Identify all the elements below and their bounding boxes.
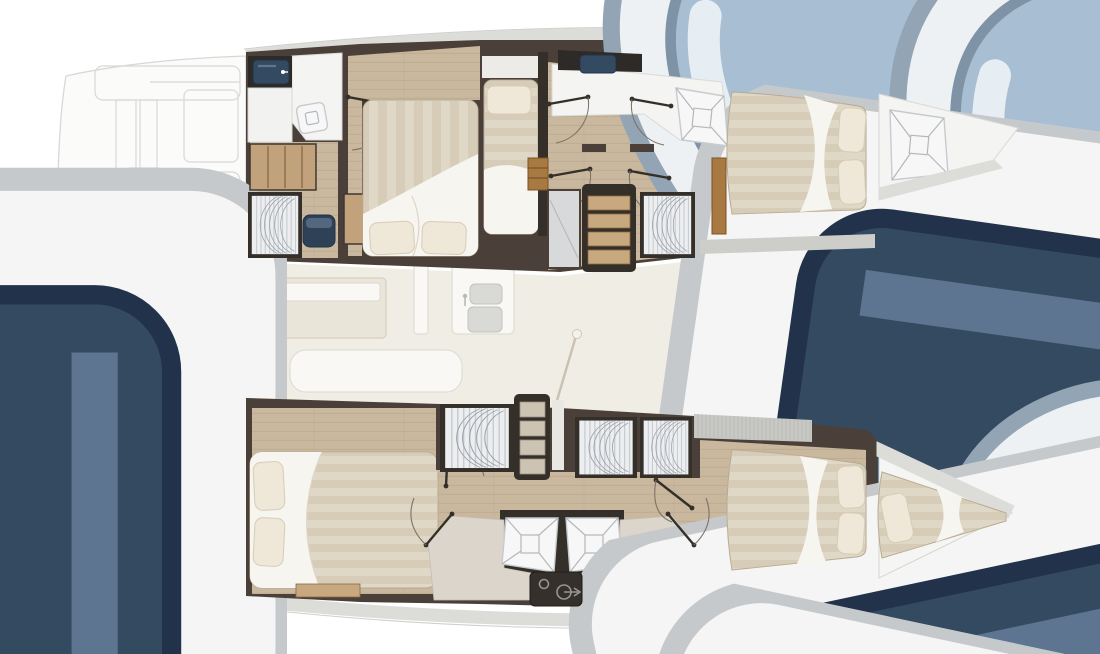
wardrobe-icon — [640, 417, 692, 478]
bedside-unit — [712, 158, 726, 234]
pillow — [837, 107, 866, 153]
side-panel — [552, 400, 564, 470]
louvered-locker — [250, 144, 316, 190]
galley-sink-unit — [452, 262, 514, 334]
galley-sink-bowl — [470, 284, 502, 304]
shower-icon — [676, 88, 728, 146]
wardrobe-icon — [440, 404, 514, 472]
galley-sink-bowl — [468, 307, 502, 332]
bed-step — [296, 584, 360, 597]
wall-stub — [582, 144, 606, 152]
wardrobe-icon — [640, 192, 695, 258]
wardrobe-icon — [248, 192, 302, 258]
berth-head-panel — [482, 56, 538, 78]
pillow — [253, 517, 285, 567]
double-bed — [727, 92, 867, 214]
washbasin-icon — [0, 179, 287, 654]
pillow — [369, 221, 415, 255]
staircase-icon — [582, 184, 636, 272]
pillow — [837, 512, 866, 555]
pole-knob — [573, 330, 582, 339]
pillow — [487, 86, 531, 114]
berth-partition-wall — [538, 52, 548, 236]
shower-icon — [502, 518, 558, 572]
saloon-divider — [414, 262, 428, 334]
counter-basin-icon — [580, 55, 616, 73]
wardrobe-icon — [575, 417, 637, 478]
double-bed — [727, 450, 866, 570]
shower-icon — [890, 110, 948, 180]
pillow — [837, 465, 866, 509]
vanity-counter — [248, 88, 292, 142]
pillow — [421, 221, 466, 255]
wall-stub — [630, 144, 654, 152]
catamaran-floorplan — [0, 0, 1100, 654]
pillow — [838, 159, 866, 204]
shower-drain-mat-icon — [296, 102, 328, 134]
double-bed — [250, 452, 438, 588]
entry-steps — [528, 158, 548, 190]
single-berth — [484, 80, 538, 234]
pillow — [253, 461, 285, 511]
double-bed — [363, 100, 478, 256]
floorplan-stage — [0, 0, 1100, 654]
staircase-icon — [514, 394, 550, 480]
utility-block — [530, 572, 582, 606]
saloon-bench — [290, 350, 462, 392]
